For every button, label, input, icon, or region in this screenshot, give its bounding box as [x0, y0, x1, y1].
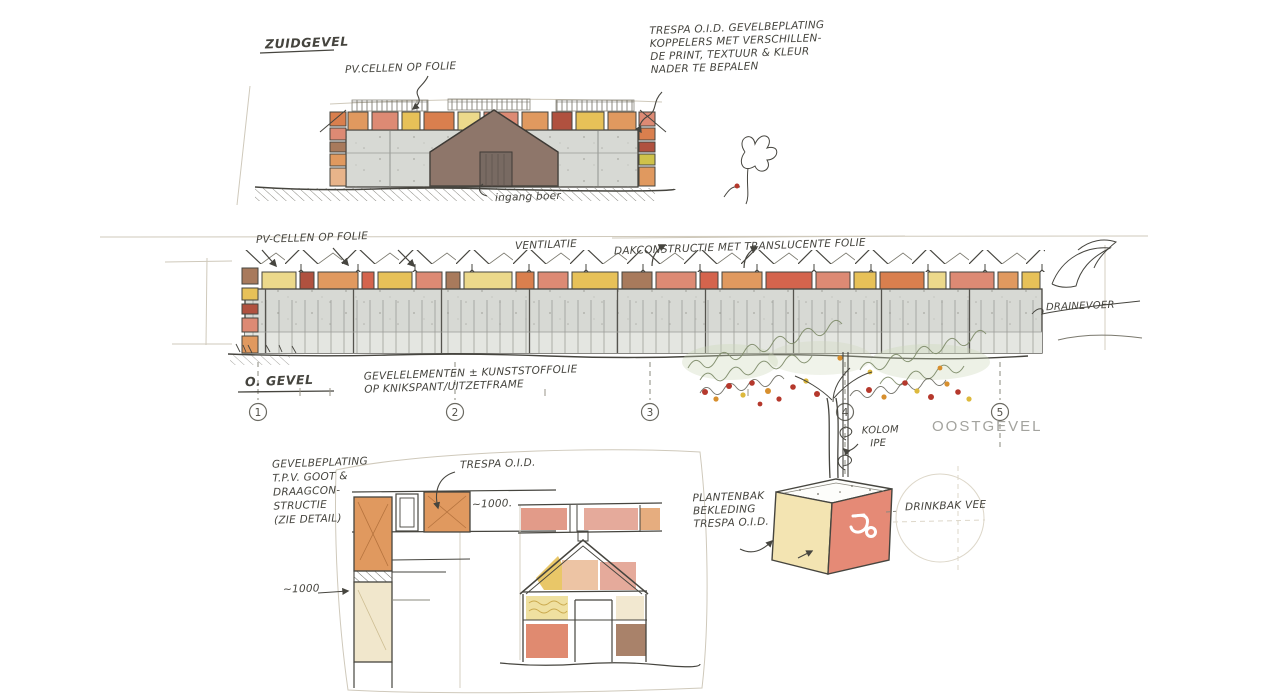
south-elevation-drawing — [255, 76, 777, 204]
note-line: PLANTENBAK — [692, 490, 768, 506]
label-ingang-boer: ingang boer — [495, 190, 561, 205]
dim-1000-top: ~1000. — [472, 497, 513, 511]
grid-number-3: 3 — [647, 407, 654, 419]
gutter-detail-drawing — [318, 450, 707, 693]
facade-fragment-drawing — [500, 503, 700, 667]
grid-number-1: 1 — [255, 407, 262, 419]
label-ventilatie: VENTILATIE — [515, 238, 578, 253]
label-drainevoer: DRAINEVOER — [1046, 299, 1115, 314]
note-gevelbeplating-detail: GEVELBEPLATING T.P.V. GOOT & DRAAGCON- S… — [272, 454, 370, 527]
note-line: TRESPA O.I.D. — [693, 516, 769, 532]
note-trespa-gevelbeplating: TRESPA O.I.D. GEVELBEPLATING KOPPELERS M… — [649, 19, 826, 77]
label-kolom-ipe: KOLOM IPE — [862, 423, 900, 450]
note-plantenbak: PLANTENBAK BEKLEDING TRESPA O.I.D. — [692, 490, 769, 532]
note-line: IPE — [862, 436, 900, 450]
sketch-canvas: 1 2 3 4 5 — [0, 0, 1280, 700]
east-elevation-drawing: 1 2 3 4 5 — [228, 236, 1142, 476]
label-trespa-oid: TRESPA O.I.D. — [460, 457, 536, 473]
caption-oostgevel: OOSTGEVEL — [932, 418, 1043, 435]
plant-doodle — [724, 136, 777, 204]
margin-doodles — [1032, 240, 1142, 340]
dim-1000-left: ~1000 — [283, 582, 320, 596]
label-zuidgevel-title: ZUIDGEVEL — [265, 35, 349, 51]
note-line: KOLOM — [862, 423, 900, 437]
label-oost-gevel-title: O. GEVEL — [245, 373, 314, 388]
grid-number-2: 2 — [452, 407, 459, 419]
architect-sketch-page: 1 2 3 4 5 — [0, 0, 1280, 700]
